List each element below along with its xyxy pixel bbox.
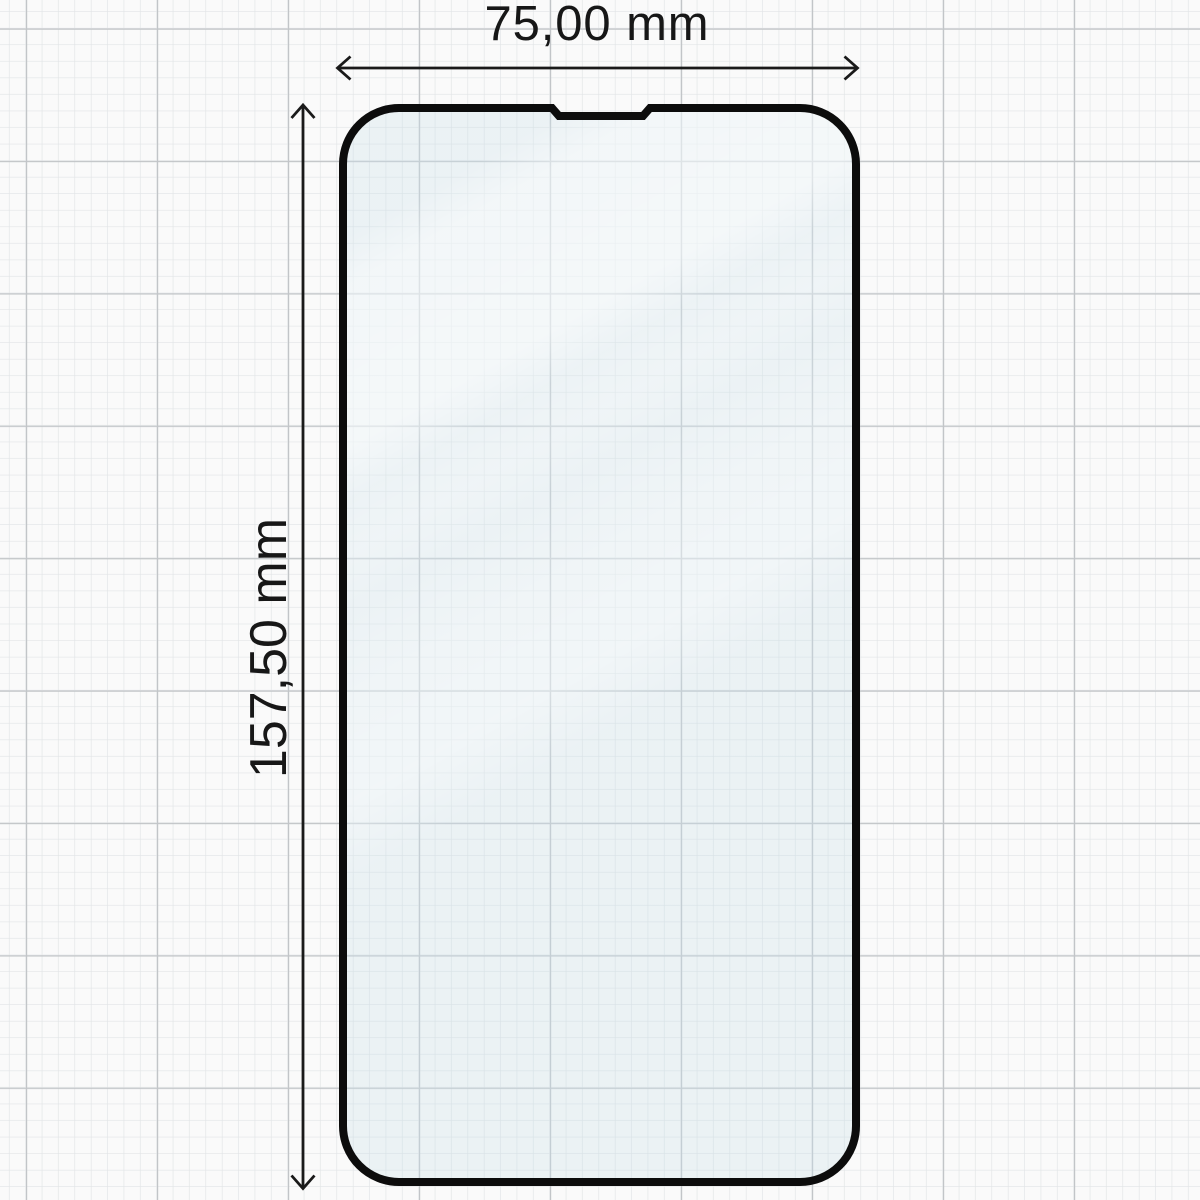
svg-text:75,00 mm: 75,00 mm bbox=[484, 0, 709, 51]
svg-text:157,50 mm: 157,50 mm bbox=[240, 518, 298, 778]
